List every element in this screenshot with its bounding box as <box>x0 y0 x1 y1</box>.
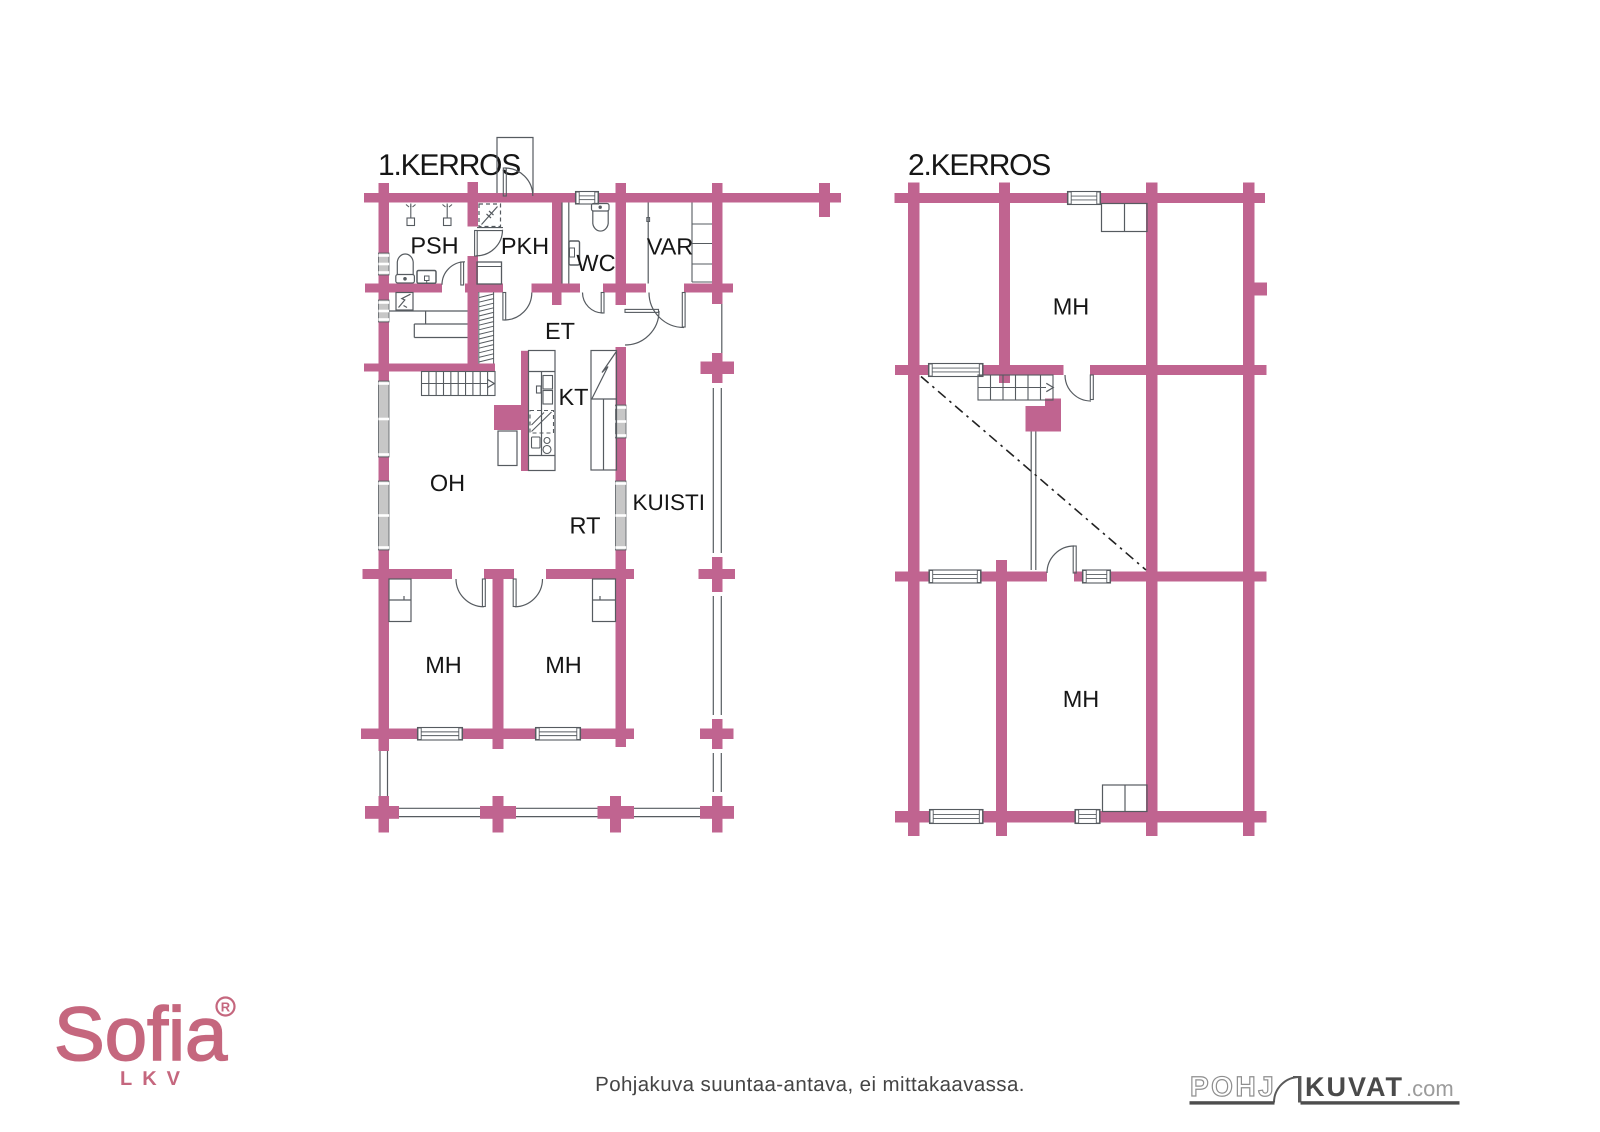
svg-text:Pohjakuva suuntaa-antava, ei m: Pohjakuva suuntaa-antava, ei mittakaavas… <box>595 1073 1025 1096</box>
svg-text:.com: .com <box>1406 1076 1454 1101</box>
svg-text:WC: WC <box>576 250 615 276</box>
svg-text:MH: MH <box>1053 294 1090 320</box>
svg-text:MH: MH <box>545 652 582 678</box>
svg-text:Sofia: Sofia <box>54 992 228 1077</box>
svg-text:PKH: PKH <box>501 233 549 259</box>
svg-text:VAR: VAR <box>647 234 694 260</box>
svg-text:MH: MH <box>425 652 462 678</box>
svg-text:R: R <box>221 1000 231 1015</box>
svg-text:LKV: LKV <box>120 1068 190 1090</box>
svg-text:POHJ: POHJ <box>1190 1071 1276 1102</box>
svg-text:KUISTI: KUISTI <box>633 490 706 515</box>
svg-text:PSH: PSH <box>410 233 458 259</box>
svg-text:ET: ET <box>545 318 575 344</box>
svg-text:KUVAT: KUVAT <box>1305 1072 1404 1102</box>
svg-text:1.KERROS: 1.KERROS <box>378 149 520 182</box>
svg-text:KT: KT <box>558 384 588 410</box>
svg-text:RT: RT <box>570 513 601 539</box>
svg-text:2.KERROS: 2.KERROS <box>908 149 1050 182</box>
svg-text:MH: MH <box>1063 686 1100 712</box>
svg-text:OH: OH <box>430 470 465 496</box>
